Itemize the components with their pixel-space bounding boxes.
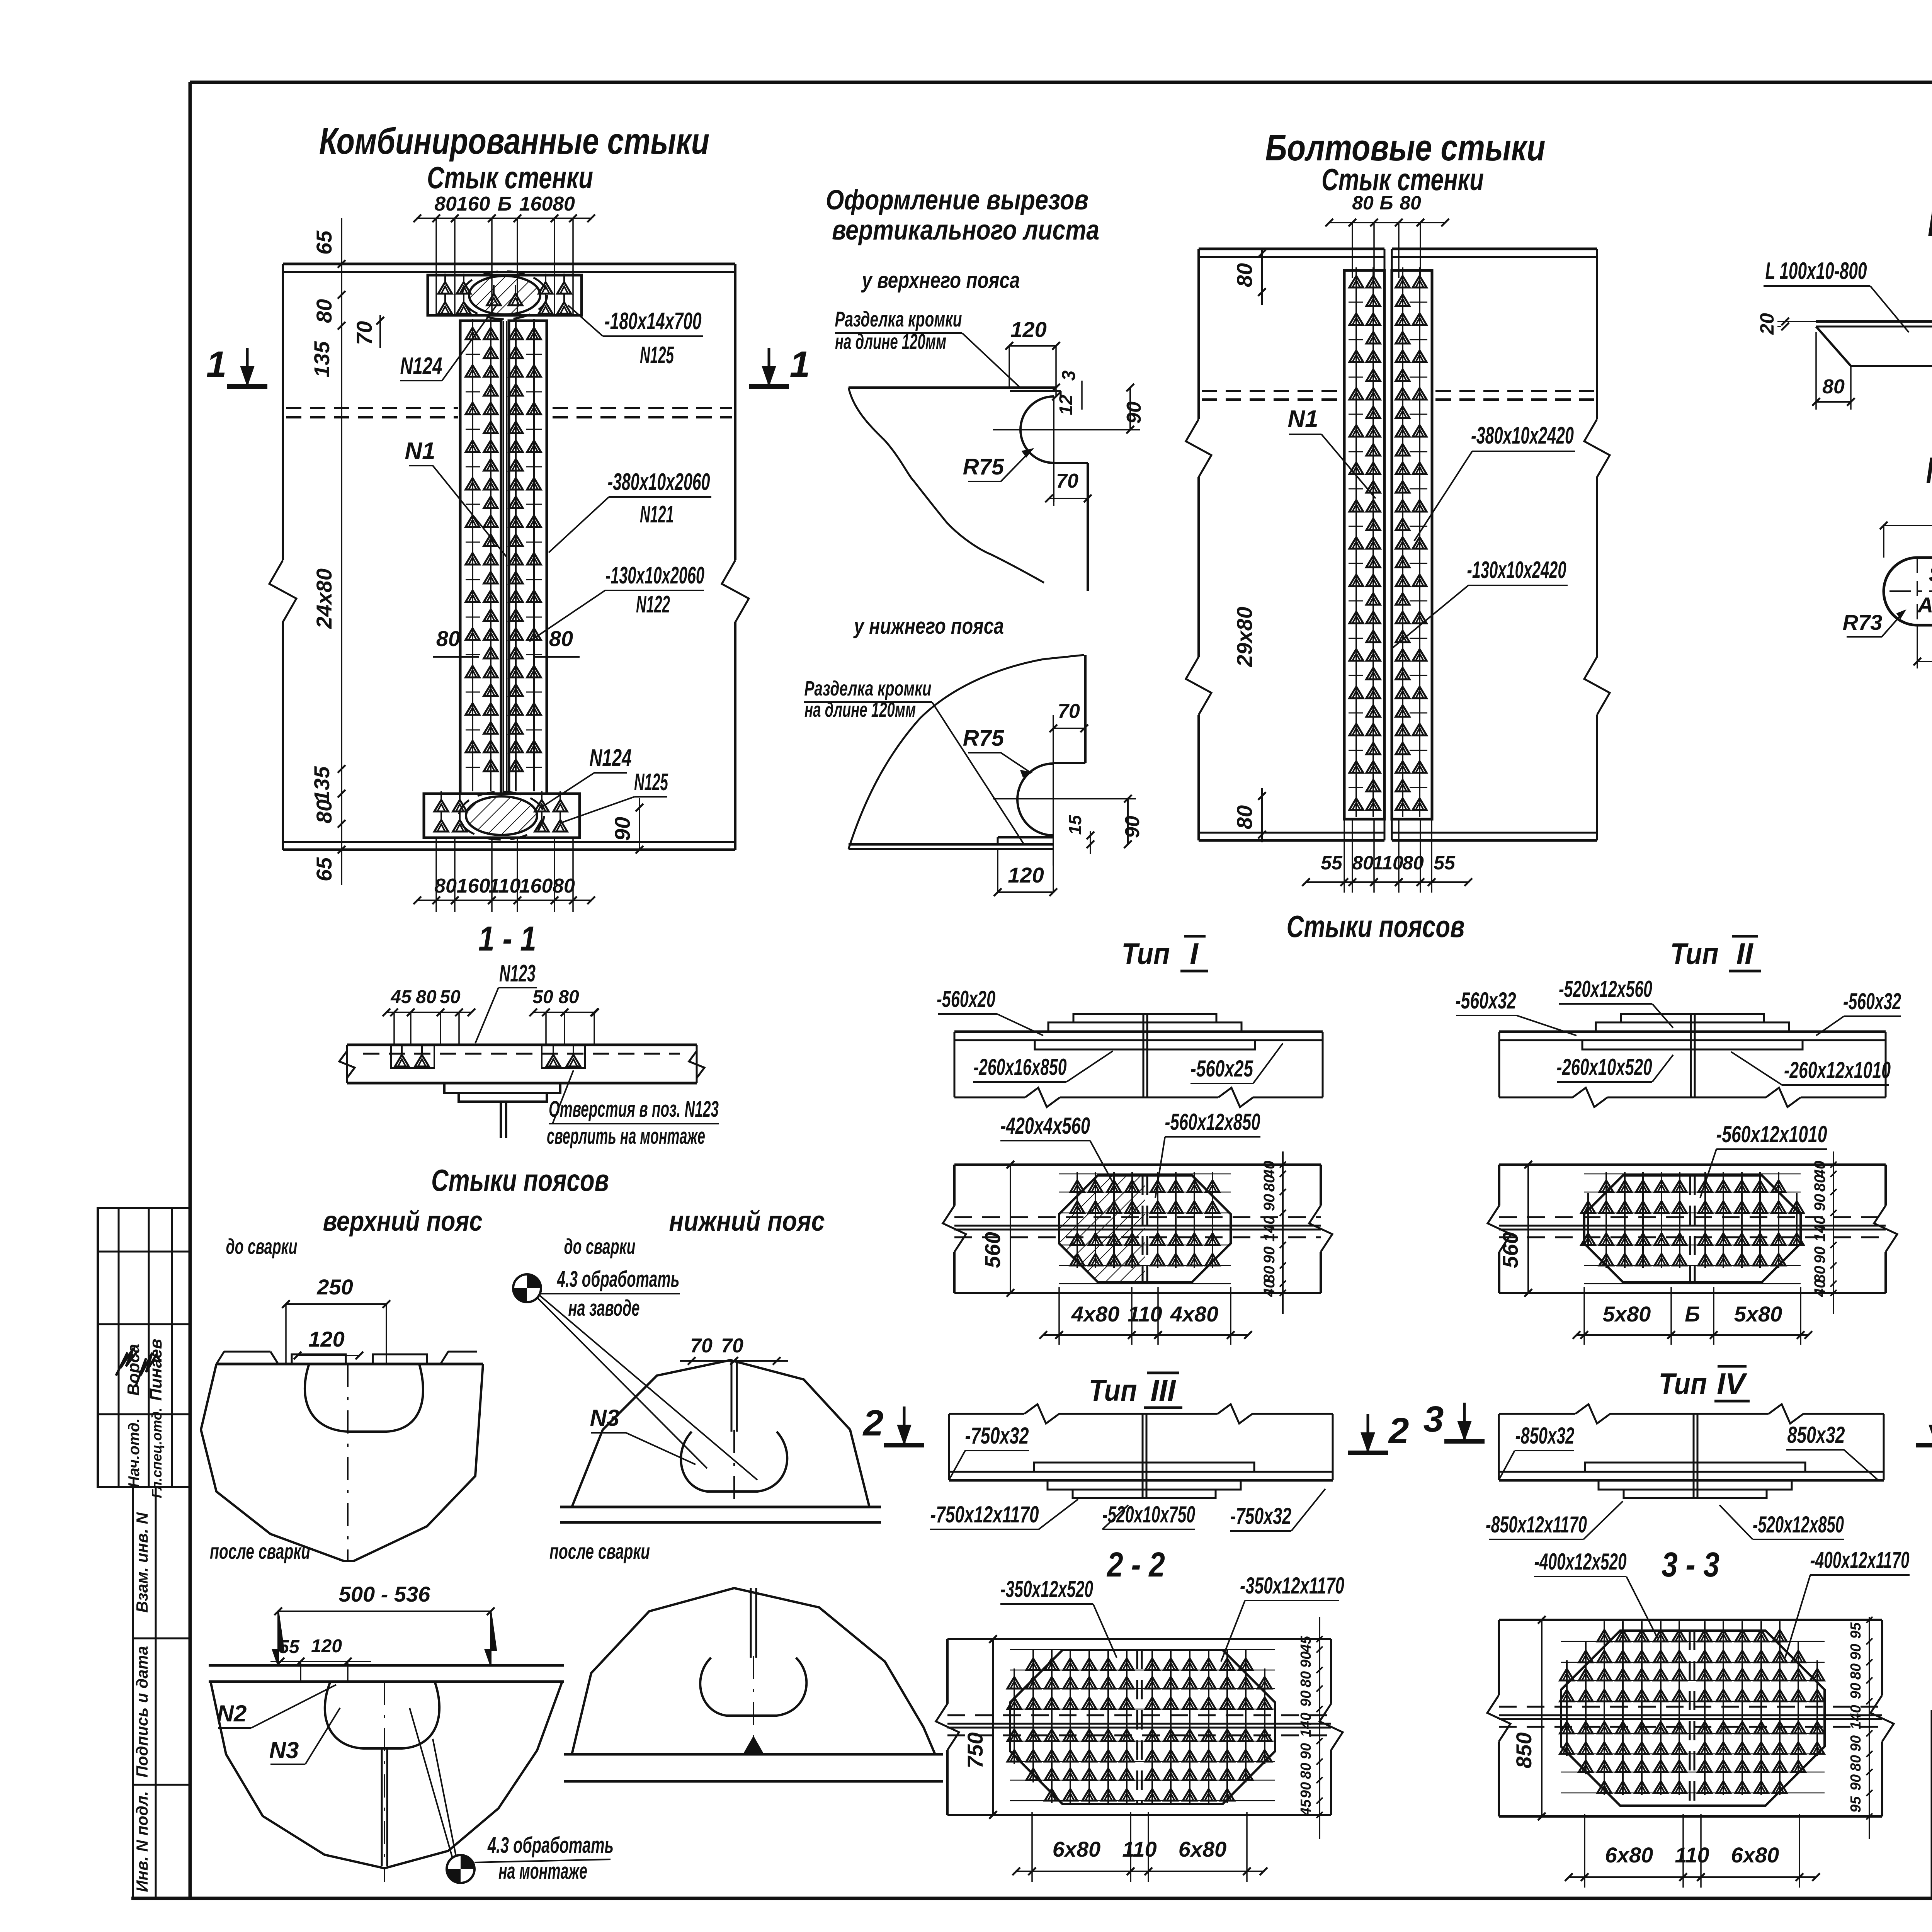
svg-text:90: 90: [1848, 1683, 1864, 1699]
svg-text:после сварки: после сварки: [210, 1539, 310, 1563]
svg-text:65: 65: [312, 857, 336, 881]
svg-text:80: 80: [1352, 852, 1374, 874]
svg-text:140: 140: [1298, 1713, 1314, 1737]
svg-text:40: 40: [1811, 1280, 1828, 1298]
svg-text:500 - 536: 500 - 536: [339, 1582, 430, 1606]
svg-text:80: 80: [1232, 263, 1257, 287]
svg-text:160: 160: [519, 193, 553, 215]
svg-text:-420x4x560: -420x4x560: [1000, 1113, 1090, 1139]
svg-text:N124: N124: [590, 745, 632, 771]
svg-text:на монтаже: на монтаже: [498, 1859, 587, 1884]
svg-text:Взам. инв. N: Взам. инв. N: [133, 1512, 151, 1613]
svg-text:80: 80: [436, 626, 460, 651]
svg-text:90: 90: [1123, 401, 1145, 424]
svg-text:850: 850: [1512, 1732, 1536, 1768]
svg-text:140: 140: [1848, 1705, 1864, 1729]
svg-text:45: 45: [1298, 1636, 1314, 1653]
svg-text:95: 95: [1848, 1796, 1864, 1813]
svg-text:Отверстия в поз. N123: Отверстия в поз. N123: [549, 1097, 719, 1122]
svg-text:-380x10x2420: -380x10x2420: [1471, 422, 1574, 449]
svg-text:верхний пояс: верхний пояс: [323, 1206, 483, 1237]
svg-text:у нижнего пояса: у нижнего пояса: [853, 614, 1004, 639]
svg-text:55: 55: [279, 1637, 300, 1657]
svg-text:после сварки: после сварки: [549, 1539, 650, 1563]
svg-text:-350x12x1170: -350x12x1170: [1240, 1573, 1344, 1599]
svg-text:80: 80: [549, 626, 573, 651]
svg-text:N123: N123: [1928, 202, 1932, 244]
svg-text:N125: N125: [640, 342, 674, 369]
svg-text:-560x32: -560x32: [1843, 988, 1901, 1014]
svg-text:20: 20: [1756, 313, 1778, 335]
svg-text:Тип: Тип: [1089, 1373, 1137, 1407]
svg-text:110: 110: [489, 875, 521, 897]
svg-text:80: 80: [1298, 1671, 1314, 1687]
svg-text:80: 80: [1811, 1175, 1828, 1192]
svg-text:Нач.отд.: Нач.отд.: [126, 1418, 143, 1487]
svg-text:90: 90: [1298, 1651, 1314, 1668]
svg-text:55: 55: [1321, 852, 1343, 874]
svg-text:Разделка кромки: Разделка кромки: [835, 307, 962, 331]
svg-text:250: 250: [316, 1275, 353, 1299]
svg-text:110: 110: [1675, 1843, 1709, 1867]
svg-text:Пинаев: Пинаев: [146, 1339, 165, 1401]
svg-text:750: 750: [963, 1732, 987, 1768]
svg-text:90: 90: [1261, 1247, 1278, 1264]
svg-text:-560x12x850: -560x12x850: [1165, 1109, 1260, 1135]
svg-text:55: 55: [1434, 852, 1456, 874]
svg-text:Стык стенки: Стык стенки: [427, 160, 593, 195]
svg-text:-350x12x520: -350x12x520: [1000, 1576, 1093, 1602]
svg-text:-130x10x2420: -130x10x2420: [1467, 557, 1566, 583]
svg-text:Б: Б: [498, 193, 512, 215]
svg-text:135: 135: [310, 341, 334, 377]
svg-text:N124: N124: [1926, 450, 1932, 491]
svg-text:N124: N124: [400, 353, 442, 379]
svg-text:Подпись и дата: Подпись и дата: [133, 1646, 151, 1777]
svg-text:-850x32: -850x32: [1515, 1423, 1575, 1449]
svg-text:Стык стенки: Стык стенки: [1321, 162, 1484, 197]
svg-text:2 - 2: 2 - 2: [1106, 1546, 1165, 1584]
svg-text:5x80: 5x80: [1734, 1302, 1782, 1326]
svg-text:N122: N122: [636, 591, 670, 618]
svg-text:Комбинированные стыки: Комбинированные стыки: [319, 121, 709, 162]
svg-text:110: 110: [1128, 1302, 1162, 1326]
svg-text:90: 90: [1848, 1735, 1864, 1752]
svg-text:160: 160: [457, 193, 490, 215]
svg-text:до сварки: до сварки: [564, 1234, 636, 1259]
svg-text:III: III: [1150, 1373, 1176, 1407]
svg-text:135: 135: [310, 766, 334, 802]
svg-text:1: 1: [206, 344, 227, 385]
svg-text:-260x12x1010: -260x12x1010: [1784, 1057, 1891, 1083]
svg-text:40: 40: [1261, 1280, 1278, 1298]
svg-text:95: 95: [1848, 1622, 1864, 1639]
svg-text:Тип: Тип: [1122, 937, 1170, 971]
svg-text:70: 70: [721, 1335, 743, 1357]
svg-text:на заводе: на заводе: [568, 1296, 640, 1321]
svg-text:1 - 1: 1 - 1: [478, 920, 536, 958]
svg-text:на длине 120мм: на длине 120мм: [835, 329, 946, 354]
svg-text:Тип: Тип: [1670, 937, 1719, 971]
svg-text:A=380: A=380: [1917, 593, 1932, 617]
svg-text:160: 160: [457, 875, 490, 897]
svg-text:70: 70: [352, 321, 376, 345]
svg-text:80: 80: [1298, 1763, 1314, 1779]
svg-text:N125: N125: [634, 769, 668, 796]
svg-text:65: 65: [312, 230, 336, 255]
svg-text:80: 80: [1232, 805, 1257, 829]
svg-text:80: 80: [1400, 192, 1421, 214]
svg-text:N3: N3: [590, 1405, 620, 1431]
svg-text:850x32: 850x32: [1787, 1422, 1845, 1448]
svg-text:70: 70: [1058, 700, 1080, 723]
svg-text:45: 45: [390, 987, 412, 1007]
svg-text:R75: R75: [963, 454, 1004, 480]
svg-text:-750x32: -750x32: [965, 1423, 1029, 1449]
svg-text:110: 110: [1122, 1837, 1156, 1861]
svg-text:6x80: 6x80: [1179, 1837, 1227, 1861]
svg-text:5x80: 5x80: [1603, 1302, 1651, 1326]
svg-text:-260x16x850: -260x16x850: [974, 1054, 1067, 1080]
svg-text:120: 120: [1010, 317, 1046, 342]
svg-text:Оформление вырезов: Оформление вырезов: [826, 185, 1088, 216]
svg-text:80: 80: [434, 875, 457, 897]
svg-text:Инв. N подл.: Инв. N подл.: [133, 1791, 151, 1892]
svg-text:24x80: 24x80: [312, 568, 336, 629]
svg-text:Ворса: Ворса: [124, 1344, 143, 1396]
svg-text:29x80: 29x80: [1232, 607, 1257, 667]
svg-text:N1: N1: [405, 438, 435, 464]
svg-text:6x80: 6x80: [1053, 1837, 1101, 1861]
svg-text:80: 80: [312, 799, 336, 823]
svg-text:-260x10x520: -260x10x520: [1557, 1054, 1652, 1080]
svg-text:45: 45: [1298, 1799, 1314, 1816]
svg-text:-560x12x1010: -560x12x1010: [1716, 1121, 1827, 1147]
svg-text:4.3 обработать: 4.3 обработать: [487, 1833, 614, 1858]
svg-text:15: 15: [1065, 815, 1085, 835]
svg-text:N121: N121: [640, 501, 674, 528]
svg-text:-400x12x520: -400x12x520: [1534, 1549, 1627, 1575]
svg-text:Разделка кромки: Разделка кромки: [804, 677, 932, 700]
svg-text:-750x32: -750x32: [1230, 1503, 1291, 1529]
svg-text:2: 2: [862, 1403, 884, 1444]
svg-text:90: 90: [1298, 1743, 1314, 1759]
svg-text:-560x20: -560x20: [937, 986, 995, 1012]
svg-text:-180x14x700: -180x14x700: [605, 308, 702, 335]
svg-text:3: 3: [1423, 1399, 1444, 1440]
svg-text:80: 80: [1352, 192, 1374, 214]
svg-text:12: 12: [1056, 395, 1077, 415]
svg-text:S 12: S 12: [1929, 562, 1932, 586]
svg-text:80: 80: [416, 987, 437, 1007]
svg-text:140: 140: [1261, 1216, 1278, 1242]
svg-text:N2: N2: [217, 1701, 247, 1726]
svg-text:нижний пояс: нижний пояс: [669, 1206, 825, 1237]
svg-text:80: 80: [1848, 1755, 1864, 1771]
svg-text:80: 80: [553, 875, 575, 897]
svg-text:90: 90: [1811, 1247, 1828, 1264]
svg-text:R75: R75: [963, 726, 1004, 751]
svg-text:80: 80: [558, 987, 579, 1007]
svg-text:70: 70: [690, 1335, 713, 1357]
svg-text:Стыки поясов: Стыки поясов: [1287, 909, 1465, 944]
svg-text:90: 90: [1298, 1782, 1314, 1798]
svg-text:-850x12x1170: -850x12x1170: [1486, 1512, 1587, 1537]
svg-text:120: 120: [1008, 863, 1044, 887]
svg-text:Стыки поясов: Стыки поясов: [431, 1163, 609, 1197]
svg-text:-750x12x1170: -750x12x1170: [930, 1502, 1039, 1527]
svg-text:80: 80: [1261, 1175, 1278, 1192]
svg-text:3: 3: [1059, 370, 1079, 381]
svg-text:80: 80: [312, 299, 336, 323]
svg-text:вертикального листа: вертикального листа: [832, 215, 1099, 246]
svg-text:140: 140: [1811, 1216, 1828, 1242]
svg-text:-560x25: -560x25: [1190, 1056, 1253, 1082]
svg-text:1: 1: [790, 344, 810, 385]
svg-text:Б: Б: [1379, 192, 1393, 214]
svg-text:90: 90: [610, 817, 634, 841]
svg-text:80: 80: [1822, 376, 1845, 398]
svg-text:L 100x10-800: L 100x10-800: [1765, 258, 1867, 284]
svg-text:50: 50: [532, 987, 553, 1007]
svg-text:Б: Б: [1685, 1302, 1700, 1326]
svg-text:90: 90: [1848, 1774, 1864, 1791]
svg-text:до сварки: до сварки: [226, 1234, 298, 1259]
svg-text:Тип: Тип: [1659, 1367, 1707, 1401]
svg-text:-520x10x750: -520x10x750: [1102, 1502, 1195, 1527]
svg-text:-130x10x2060: -130x10x2060: [605, 562, 704, 589]
svg-text:4x80: 4x80: [1170, 1302, 1219, 1326]
svg-text:-520x12x560: -520x12x560: [1559, 976, 1652, 1002]
svg-text:50: 50: [440, 987, 461, 1007]
svg-text:4.3 обработать: 4.3 обработать: [557, 1267, 680, 1292]
svg-text:90: 90: [1298, 1690, 1314, 1707]
svg-text:80: 80: [1848, 1663, 1864, 1680]
svg-text:6x80: 6x80: [1605, 1843, 1653, 1867]
svg-text:IV: IV: [1717, 1367, 1748, 1401]
svg-text:-560x32: -560x32: [1456, 988, 1516, 1014]
svg-text:N1: N1: [1287, 406, 1318, 432]
svg-text:6x80: 6x80: [1731, 1843, 1779, 1867]
svg-text:N3: N3: [269, 1737, 299, 1763]
svg-text:R73: R73: [1843, 610, 1883, 634]
svg-text:3 - 3: 3 - 3: [1662, 1546, 1719, 1584]
svg-text:-520x12x850: -520x12x850: [1753, 1512, 1844, 1537]
svg-text:120: 120: [311, 1636, 342, 1656]
svg-text:120: 120: [308, 1327, 344, 1351]
svg-text:-380x10x2060: -380x10x2060: [608, 469, 710, 495]
svg-text:II: II: [1736, 937, 1753, 971]
svg-text:80: 80: [553, 193, 575, 215]
svg-text:90: 90: [1261, 1194, 1278, 1211]
svg-text:90: 90: [1121, 816, 1144, 838]
svg-text:на длине 120мм: на длине 120мм: [804, 698, 916, 721]
svg-text:560: 560: [980, 1232, 1005, 1268]
svg-text:-400x12x1170: -400x12x1170: [1810, 1547, 1910, 1573]
svg-text:560: 560: [1498, 1232, 1522, 1268]
svg-text:у верхнего пояса: у верхнего пояса: [861, 268, 1020, 293]
svg-text:4x80: 4x80: [1071, 1302, 1120, 1326]
svg-text:90: 90: [1811, 1194, 1828, 1211]
svg-text:2: 2: [1388, 1410, 1409, 1451]
svg-text:70: 70: [1056, 470, 1078, 492]
svg-text:N123: N123: [499, 960, 536, 987]
svg-text:90: 90: [1848, 1644, 1864, 1660]
svg-text:Гл.спец.отд.: Гл.спец.отд.: [149, 1408, 165, 1498]
svg-text:I: I: [1190, 937, 1199, 971]
svg-text:160: 160: [519, 875, 553, 897]
svg-text:сверлить на монтаже: сверлить на монтаже: [547, 1124, 705, 1149]
svg-text:80: 80: [434, 193, 457, 215]
